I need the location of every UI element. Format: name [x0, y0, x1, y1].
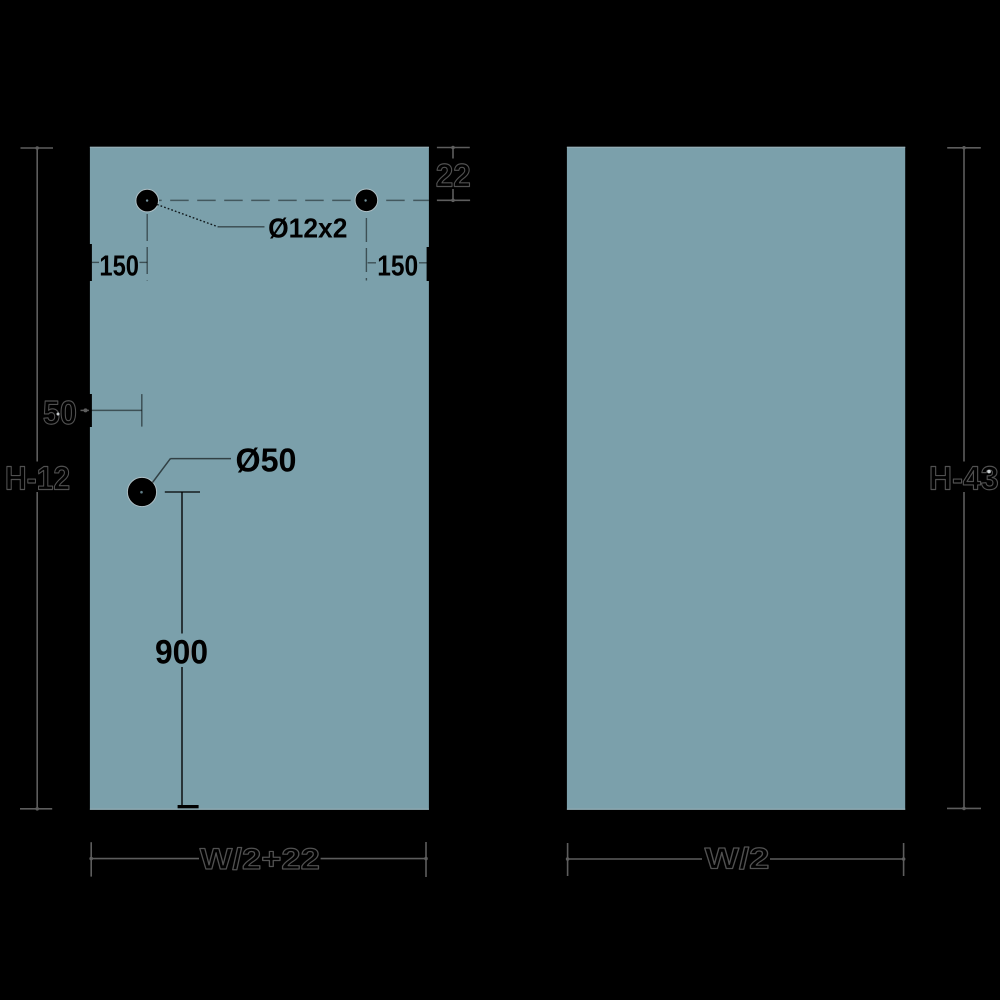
svg-text:50: 50	[43, 394, 77, 431]
svg-text:H-12: H-12	[5, 460, 70, 497]
svg-text:150: 150	[377, 251, 418, 283]
svg-text:H-43: H-43	[929, 460, 999, 497]
svg-text:W/2: W/2	[705, 843, 770, 876]
svg-text:W/2+22: W/2+22	[200, 843, 320, 876]
svg-text:Ø12x2: Ø12x2	[268, 213, 347, 244]
svg-text:900: 900	[155, 634, 208, 672]
svg-text:22: 22	[436, 157, 471, 194]
svg-text:Ø50: Ø50	[236, 442, 297, 479]
svg-text:150: 150	[99, 250, 139, 282]
